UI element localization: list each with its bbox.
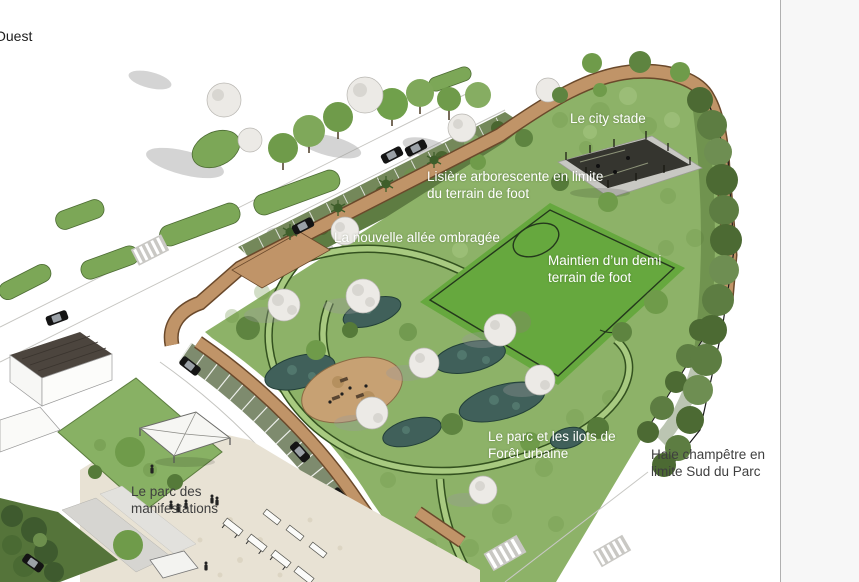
label-demi-terrain: Maintien d’un demi terrain de foot: [548, 252, 661, 286]
compass-label: Ouest: [0, 28, 32, 44]
park-rendering: [0, 0, 859, 582]
label-lisiere: Lisière arborescente en limite du terrai…: [427, 168, 603, 202]
label-parc-manifestations: Le parc des manifestations: [131, 483, 218, 517]
right-panel: [780, 0, 859, 582]
label-parc-ilots: Le parc et les ilots de Forêt urbaine: [488, 428, 616, 462]
label-haie-champetre: Haie champêtre en limite Sud du Parc: [651, 446, 765, 480]
label-city-stade: Le city stade: [570, 110, 646, 127]
crosswalk-north: [131, 234, 169, 265]
label-nouvelle-allee: La nouvelle allée ombragée: [334, 229, 500, 246]
park-masterplan-view: Ouest Le city stade Lisière arborescente…: [0, 0, 859, 582]
